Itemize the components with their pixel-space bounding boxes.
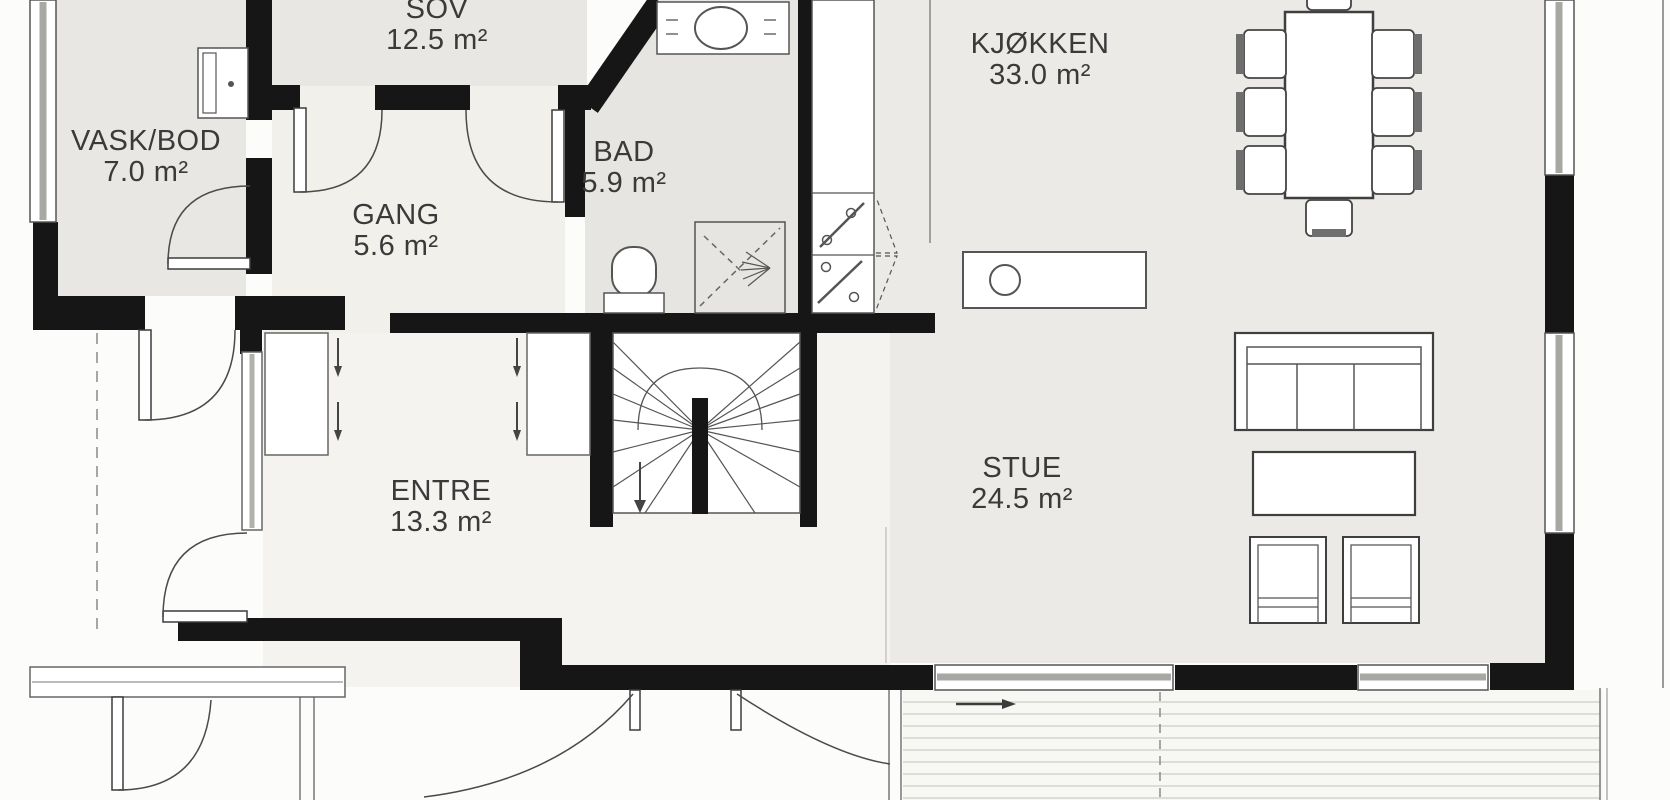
floor-plan-drawing — [0, 0, 1670, 800]
room-name: KJØKKEN — [971, 29, 1110, 60]
kitchen-sink-icon — [990, 265, 1020, 295]
kitchen-island-icon — [963, 252, 1146, 308]
room-label-vask-bod: VASK/BOD 7.0 m² — [71, 126, 221, 188]
room-label-sov: SOV 12.5 m² — [386, 0, 488, 56]
room-area: 5.6 m² — [352, 231, 439, 262]
window-icon — [1545, 333, 1574, 533]
washer-icon — [198, 48, 248, 118]
room-label-kjokken: KJØKKEN 33.0 m² — [971, 29, 1110, 91]
porch-railing — [30, 667, 345, 697]
window-icon — [1358, 665, 1488, 690]
door-leaf — [139, 330, 151, 420]
door-leaf — [294, 108, 306, 192]
room-name: SOV — [386, 0, 488, 25]
room-area: 7.0 m² — [71, 157, 221, 188]
door-leaf — [112, 697, 123, 790]
room-name: GANG — [352, 200, 439, 231]
room-label-bad: BAD 5.9 m² — [581, 137, 666, 199]
room-area: 33.0 m² — [971, 60, 1110, 91]
room-name: BAD — [581, 137, 666, 168]
armchair-icon — [1343, 537, 1419, 623]
coffee-table-icon — [1253, 452, 1415, 515]
room-label-gang: GANG 5.6 m² — [352, 200, 439, 262]
window-icon — [1545, 0, 1574, 175]
room-area: 5.9 m² — [581, 168, 666, 199]
room-area: 24.5 m² — [971, 484, 1073, 515]
room-area: 12.5 m² — [386, 25, 488, 56]
window-icon — [242, 352, 262, 530]
window-icon — [935, 665, 1173, 690]
room-name: VASK/BOD — [71, 126, 221, 157]
dining-table-icon — [1285, 12, 1373, 198]
door-leaf — [552, 110, 564, 202]
door-leaf — [168, 258, 250, 269]
floor-plan: VASK/BOD 7.0 m² SOV 12.5 m² GANG 5.6 m² … — [0, 0, 1670, 800]
room-name: ENTRE — [390, 476, 492, 507]
sofa-icon — [1235, 333, 1433, 430]
room-area: 13.3 m² — [390, 507, 492, 538]
armchair-icon — [1250, 537, 1326, 623]
room-label-entre: ENTRE 13.3 m² — [390, 476, 492, 538]
window-icon — [30, 0, 56, 222]
room-name: STUE — [971, 453, 1073, 484]
bathroom-vanity-icon — [657, 2, 789, 54]
room-label-stue: STUE 24.5 m² — [971, 453, 1073, 515]
door-leaf — [163, 611, 247, 622]
stairs-icon — [613, 333, 800, 514]
